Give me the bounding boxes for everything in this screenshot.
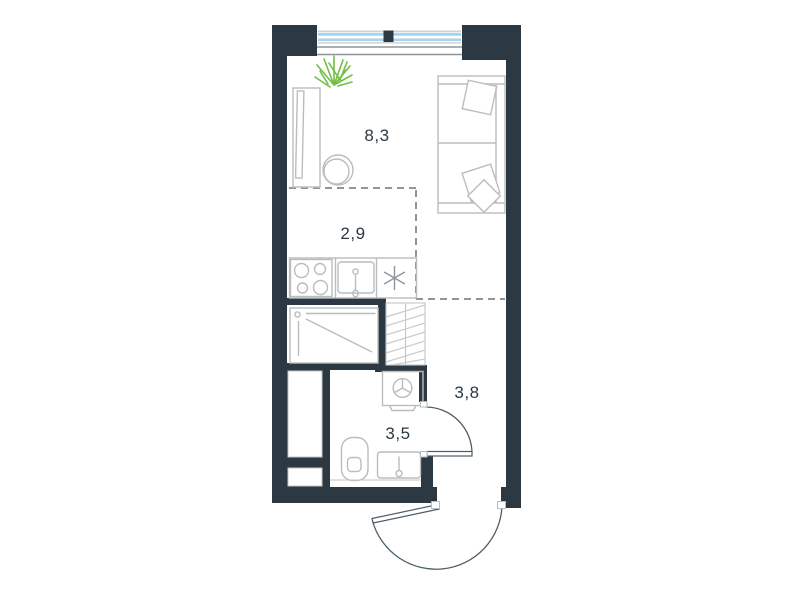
room-label-hallway: 3,8 (444, 383, 490, 403)
service-shaft-lower (288, 468, 322, 486)
round-table (323, 155, 353, 185)
service-shaft-upper (288, 371, 322, 457)
room-label-living: 8,3 (354, 126, 400, 146)
window-icon (317, 31, 462, 55)
pillows (462, 80, 500, 212)
floor-plan-drawing (0, 0, 800, 600)
washbasin-icon (378, 452, 421, 478)
plant-icon (315, 56, 352, 87)
cooktop-icon (291, 260, 333, 297)
washing-machine-icon (383, 372, 424, 411)
wardrobe (293, 88, 320, 187)
room-label-bathroom: 3,5 (375, 424, 421, 444)
shower (290, 308, 378, 363)
sofa (438, 76, 505, 213)
toilet-icon (342, 438, 369, 481)
kitchen-counter (290, 258, 417, 298)
floor-plan: 8,3 2,9 3,8 3,5 (0, 0, 800, 600)
room-label-kitchen: 2,9 (330, 224, 376, 244)
entrance-door (372, 502, 506, 570)
refrigerator-asterisk-icon (384, 266, 405, 290)
window-mullion (384, 31, 394, 43)
zone-boundaries (289, 188, 505, 299)
kitchen-sink-icon (338, 262, 374, 297)
bathroom-door (421, 402, 473, 458)
ventilation-shaft (386, 303, 425, 365)
